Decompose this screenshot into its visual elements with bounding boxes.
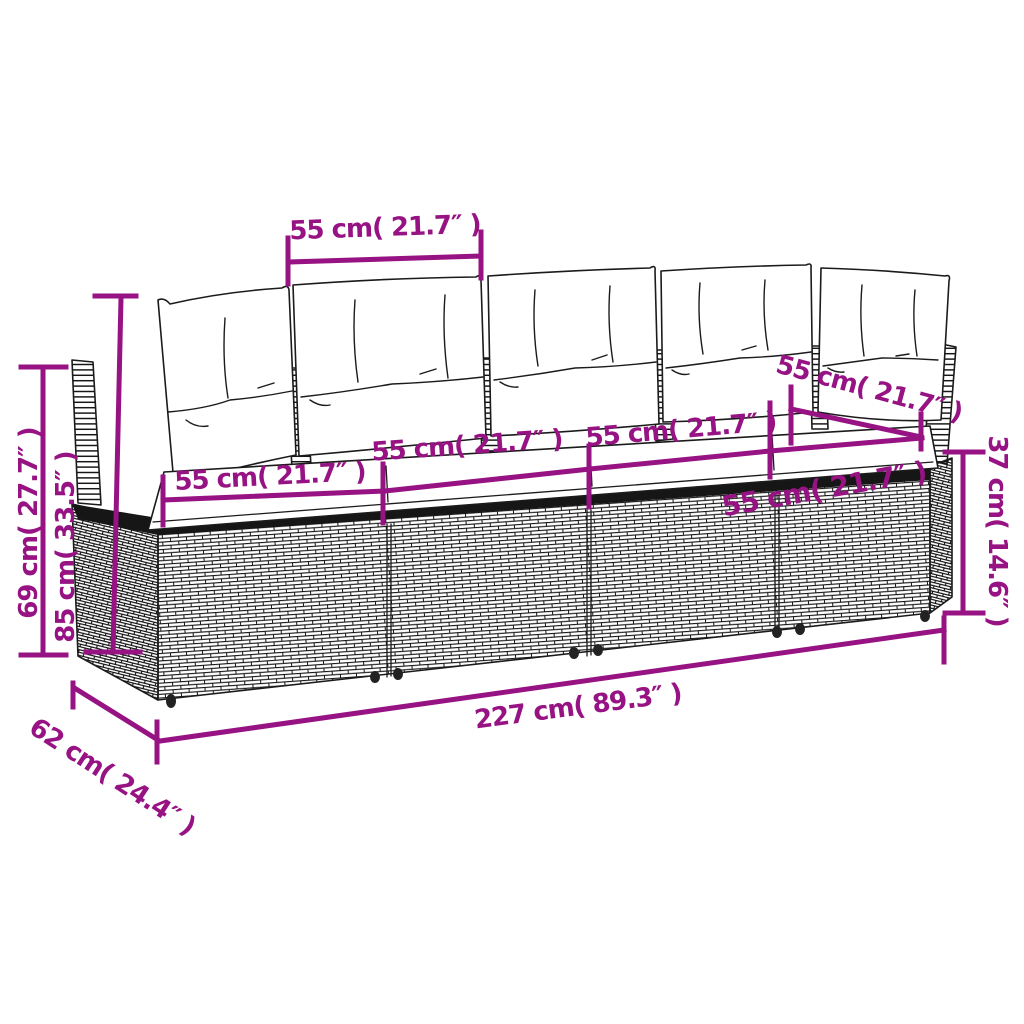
- dimension-label-back-height: 69 cm( 27.7″ ): [14, 427, 44, 618]
- sofa-illustration: [0, 0, 1024, 1024]
- dimension-label-overall-height: 85 cm( 33.5″ ): [51, 451, 81, 642]
- dimension-diagram: 55 cm( 21.7″ ) 69 cm( 27.7″ ) 85 cm( 33.…: [0, 0, 1024, 1024]
- dimension-label-base-height: 37 cm( 14.6″ ): [982, 435, 1012, 626]
